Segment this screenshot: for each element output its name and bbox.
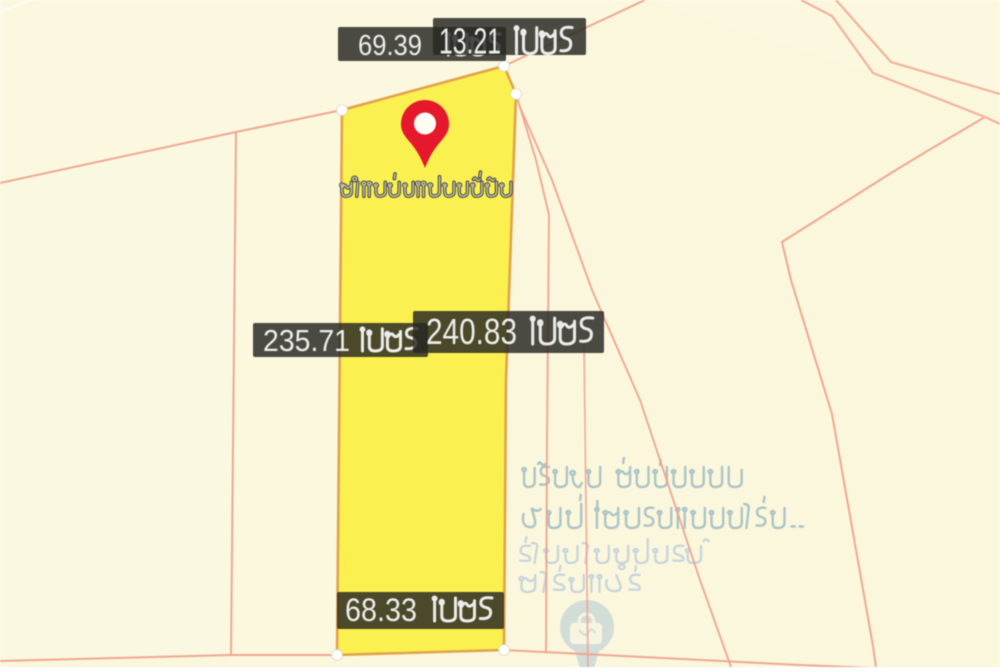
svg-text:68.33: 68.33 xyxy=(345,592,417,628)
svg-text:240.83: 240.83 xyxy=(426,311,517,352)
svg-text:235.71: 235.71 xyxy=(263,323,350,358)
svg-text:69.39: 69.39 xyxy=(358,30,422,62)
svg-text:13.21: 13.21 xyxy=(439,21,501,62)
